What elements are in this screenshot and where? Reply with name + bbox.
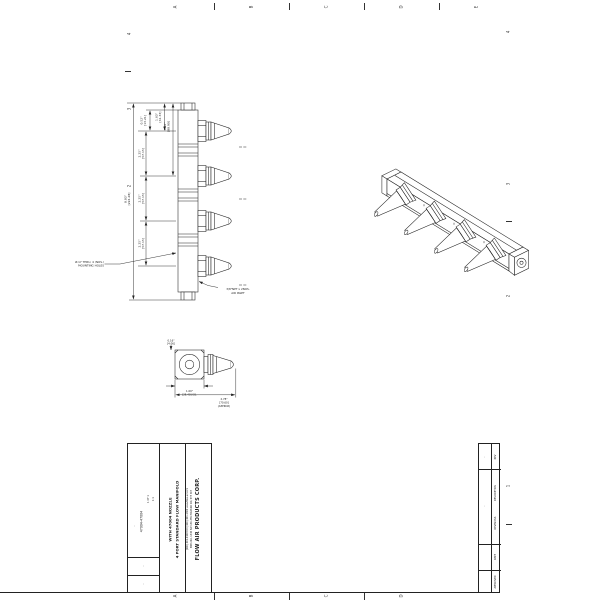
zone-letter-bottom-b: B <box>249 595 253 598</box>
zone-number-right-1: 4 <box>506 31 510 34</box>
mounting-note-line2: MOUNTING HOLES <box>78 264 104 268</box>
drawing-sheet: 2.25" [57.15] 2.25" [57.15] 2.25" [57.15… <box>0 0 600 600</box>
dimension-texts: 2.25" [57.15] 2.25" [57.15] 2.25" [57.15… <box>124 112 171 249</box>
dim-first-mm: [41.33] <box>158 112 162 123</box>
title-block-dash: - <box>141 556 145 576</box>
zone-number-right-4: 1 <box>506 485 510 488</box>
detail-square-mm: [25.40] SQ. <box>182 392 197 396</box>
zone-tick <box>289 593 290 600</box>
zone-number-right-3: 2 <box>506 295 510 298</box>
manifold-bar <box>178 103 198 300</box>
revision-value-rev: - <box>483 447 487 467</box>
nozzle-profile <box>204 355 233 375</box>
part-number: 47004-47004 <box>140 481 145 561</box>
dim-cap-mm: [13.21] <box>143 115 147 126</box>
revision-header-date: DATE <box>494 545 498 569</box>
zone-letter-top-d: D <box>400 5 404 8</box>
company-address-line1: PMB 246, 1345 SW 130-355 HOWARD RD, STE … <box>190 446 194 592</box>
dim-pitch2-mm: [57.15] <box>141 193 145 204</box>
zone-tick <box>506 221 512 222</box>
sheet-value: 1 OF 1 <box>147 484 151 514</box>
drawing-title-line2: WITH 47004 NOZZLE <box>168 446 173 592</box>
detail-length-mm: [70.60] <box>219 400 228 404</box>
dim-overall-mm: [224.28] <box>127 193 131 206</box>
dim-pitch3-mm: [57.15] <box>141 238 145 249</box>
zone-number-left-1: 4 <box>127 33 131 36</box>
zone-letter-top-e: E <box>474 6 478 9</box>
company-name: FLOW AIR PRODUCTS CORP. <box>195 446 203 592</box>
zone-tick <box>289 3 290 10</box>
title-block: FLOW AIR PRODUCTS CORP. PMB 246, 1345 SW… <box>127 443 212 593</box>
revision-header-approved: APPROVED <box>494 569 498 595</box>
zone-letter-top-c: C <box>324 6 328 9</box>
zone-tick <box>439 3 440 10</box>
dim-second-mm: [88.90] <box>166 121 170 132</box>
detail-length-approx: (APPROX) <box>218 404 230 408</box>
side-view: 2.25" [57.15] 2.25" [57.15] 2.25" [57.15… <box>75 103 250 300</box>
zone-tick <box>214 3 215 10</box>
zone-number-left-2: 3 <box>127 108 131 111</box>
zone-number-right-2: 3 <box>506 183 510 186</box>
detail-length-in: 2.78" <box>221 397 228 401</box>
detail-square-in: 1.00" <box>186 389 193 393</box>
zone-tick <box>214 593 215 600</box>
revision-value-description: - <box>483 496 487 516</box>
dim-pitch1-mm: [57.15] <box>141 148 145 159</box>
zone-letter-bottom-d: D <box>400 594 404 597</box>
sheet-bottom-border <box>0 592 500 593</box>
centerline-dashes <box>239 147 247 285</box>
zone-tick <box>506 524 512 525</box>
air-inlet-note-line2: AIR INLET <box>231 291 245 295</box>
zone-letter-top-b: B <box>249 6 253 9</box>
scale-value: 1:1 <box>152 484 156 514</box>
sheet-lineart: 2.25" [57.15] 2.25" [57.15] 2.25" [57.15… <box>0 0 600 600</box>
title-block-divider <box>159 444 160 592</box>
nozzle-side <box>198 121 231 277</box>
zone-letter-top-a: A <box>173 6 177 9</box>
detail-orifice-mm: [4.06] <box>167 342 175 346</box>
detail-view: 0.16" [4.06] 1.00" [25.40] SQ. 2.78" [70… <box>166 339 236 408</box>
revision-table: REV DESCRIPTION REVISIONS DATE APPROVED … <box>478 443 500 593</box>
company-address-line2: (400) 401-0108 FAX (400) 401-1300 www.fl… <box>186 446 190 592</box>
title-block-dash: - <box>132 516 136 536</box>
zone-number-left-3: 2 <box>127 185 131 188</box>
drawing-title-line1: 4 PORT STANDARD FLOW MANIFOLD <box>175 446 180 592</box>
zone-tick <box>125 71 131 72</box>
zone-tick <box>364 593 365 600</box>
zone-letter-bottom-c: C <box>324 595 328 598</box>
zone-letter-bottom-a: A <box>173 595 177 598</box>
title-block-dash: - <box>141 574 145 594</box>
zone-tick <box>364 3 365 10</box>
nozzle-end-face <box>175 350 204 379</box>
